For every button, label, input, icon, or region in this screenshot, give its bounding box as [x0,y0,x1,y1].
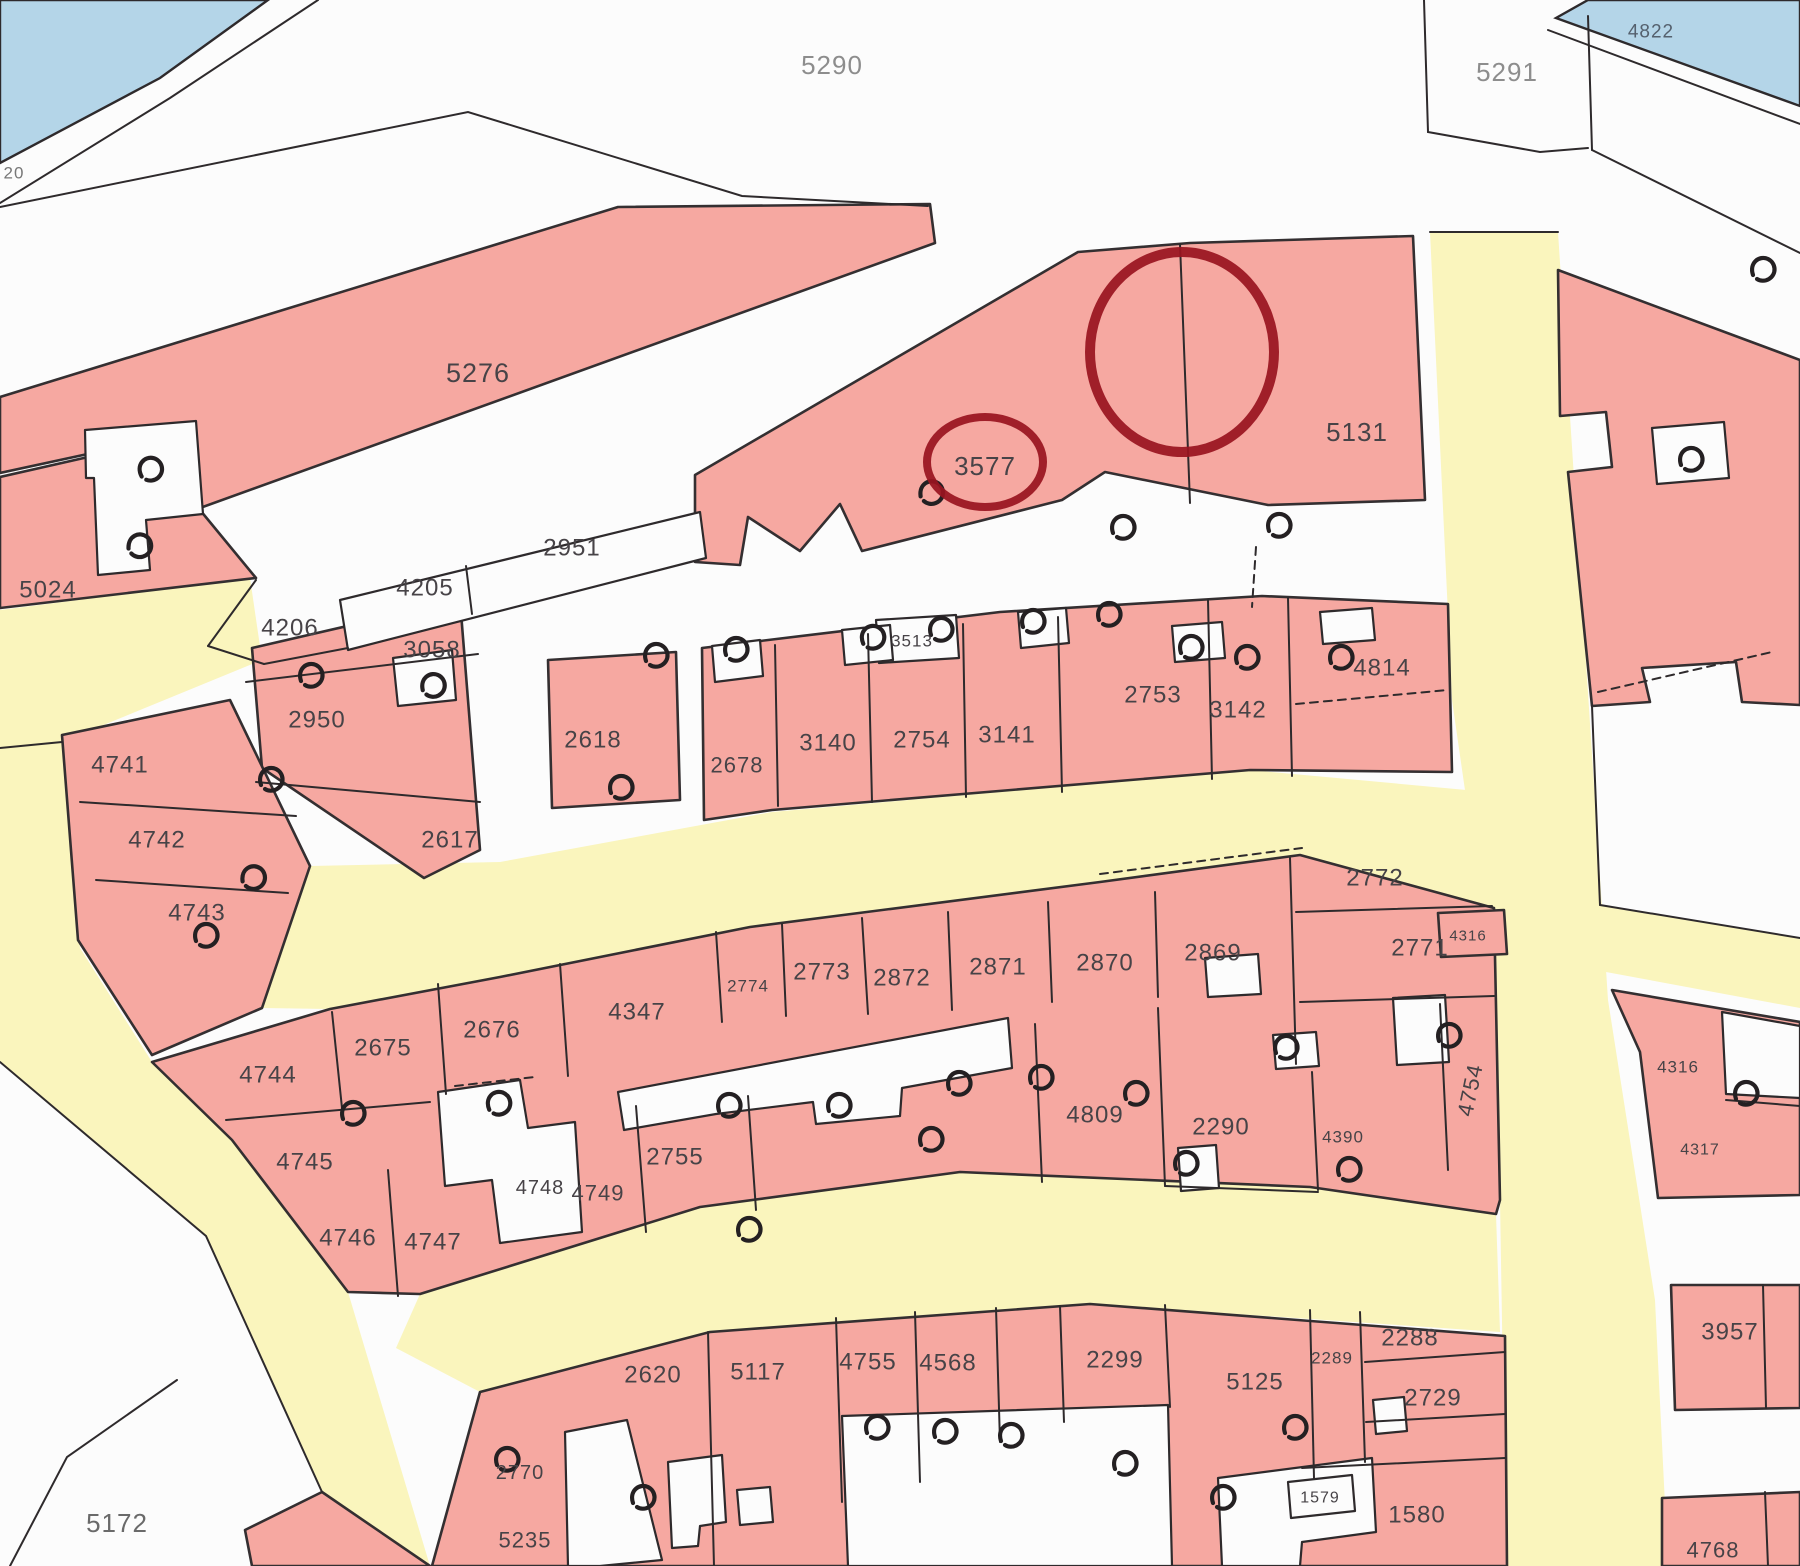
parcel-label-3957: 3957 [1701,1319,1758,1346]
parcel-label-4747: 4747 [404,1229,461,1256]
cadastral-map: 5290529148222052763577513150242951420542… [0,0,1800,1566]
parcel-label-1579: 1579 [1300,1490,1340,1507]
parcel-5291-right [1588,16,1592,150]
parcel-label-4814: 4814 [1353,655,1410,682]
block-3957 [1671,1285,1800,1410]
parcel-label-5172: 5172 [86,1508,148,1538]
parcel-label-3058: 3058 [403,637,460,664]
notch-2729 [1373,1397,1407,1434]
parcel-label-2770: 2770 [496,1462,545,1484]
entrance-hook-icon [1112,516,1134,539]
parcel-label-2678: 2678 [711,753,764,778]
parcel-label-4809: 4809 [1066,1102,1123,1129]
notch-top-right [1652,422,1729,484]
parcel-label-5024: 5024 [19,577,76,604]
parcel-label-2774: 2774 [727,977,769,996]
parcel-label-4347: 4347 [608,999,665,1026]
parcel-label-4744: 4744 [239,1062,296,1089]
parcel-label-3142: 3142 [1209,697,1266,724]
parcel-label-3140: 3140 [799,730,856,757]
cadastral-map-stage: 5290529148222052763577513150242951420542… [0,0,1800,1566]
parcel-label-4317: 4317 [1680,1142,1720,1159]
parcel-label-5131: 5131 [1326,417,1388,447]
bound-5172-a [10,1380,177,1566]
parcel-label-5291: 5291 [1476,57,1538,87]
parcel-label-2299: 2299 [1086,1347,1143,1374]
parcel-label-4746: 4746 [319,1225,376,1252]
parcel-label-2950: 2950 [288,707,345,734]
parcel-label-4741: 4741 [91,752,148,779]
white-below-4755 [842,1405,1172,1566]
notch-5117-b [737,1487,773,1525]
parcel-label-4742: 4742 [128,827,185,854]
parcel-label-2872: 2872 [873,965,930,992]
parcel-label-4316: 4316 [1449,928,1486,945]
parcel-label-2754: 2754 [893,727,950,754]
parcel-label-4745: 4745 [276,1149,333,1176]
parcel-label-20: 20 [4,164,25,183]
parcel-label-3141: 3141 [978,722,1035,749]
parcel-label-2771: 2771 [1391,935,1448,962]
parcel-label-4743: 4743 [168,900,225,927]
parcel-label-2871: 2871 [969,954,1026,981]
parcel-label-2617: 2617 [421,827,478,854]
parcel-label-1580: 1580 [1388,1502,1445,1529]
parcel-label-2773: 2773 [793,959,850,986]
entrance-hook-icon [1268,514,1290,537]
parcel-label-4768: 4768 [1687,1538,1740,1563]
parcel-label-4206: 4206 [261,615,318,642]
parcel-label-4390: 4390 [1322,1128,1364,1147]
parcel-label-3513: 3513 [891,632,933,651]
parcel-label-2951: 2951 [543,535,600,562]
bound-5290 [0,112,928,207]
parcel-label-5117: 5117 [730,1359,786,1386]
parcel-label-5235: 5235 [499,1528,552,1553]
parcel-label-4205: 4205 [396,575,453,602]
parcel-label-2870: 2870 [1076,950,1133,977]
block-top-right [1558,270,1800,706]
water-top-right [1556,0,1800,106]
parcel-label-2620: 2620 [624,1362,681,1389]
parcel-label-2288: 2288 [1381,1325,1438,1352]
parcel-label-2869: 2869 [1184,940,1241,967]
notch-4316 [1722,1012,1800,1098]
parcel-label-2290: 2290 [1192,1114,1249,1141]
parcel-label-2676: 2676 [463,1017,520,1044]
notch-row-e [1320,608,1375,644]
strip-2951 [340,512,706,650]
parcel-label-4568: 4568 [919,1350,976,1377]
parcel-label-4755: 4755 [839,1349,896,1376]
parcel-label-2772: 2772 [1346,865,1403,892]
parcel-label-2753: 2753 [1124,682,1181,709]
parcel-label-4822: 4822 [1628,22,1674,43]
parcel-label-4748: 4748 [516,1177,565,1199]
parcel-label-3577: 3577 [954,451,1016,481]
parcel-label-5290: 5290 [801,50,863,80]
parcel-label-2729: 2729 [1404,1385,1461,1412]
parcel-label-2675: 2675 [354,1035,411,1062]
parcel-label-5276: 5276 [446,358,510,388]
parcel-label-4316: 4316 [1657,1058,1699,1077]
parcel-label-2289: 2289 [1311,1349,1353,1368]
water-top-left [0,0,268,163]
entrance-hook-icon [1752,258,1774,281]
parcel-label-2755: 2755 [646,1144,703,1171]
coast-parcel [1592,150,1800,253]
parcel-label-2618: 2618 [564,727,621,754]
parcel-label-4749: 4749 [572,1181,625,1206]
parcel-label-5125: 5125 [1226,1369,1283,1396]
